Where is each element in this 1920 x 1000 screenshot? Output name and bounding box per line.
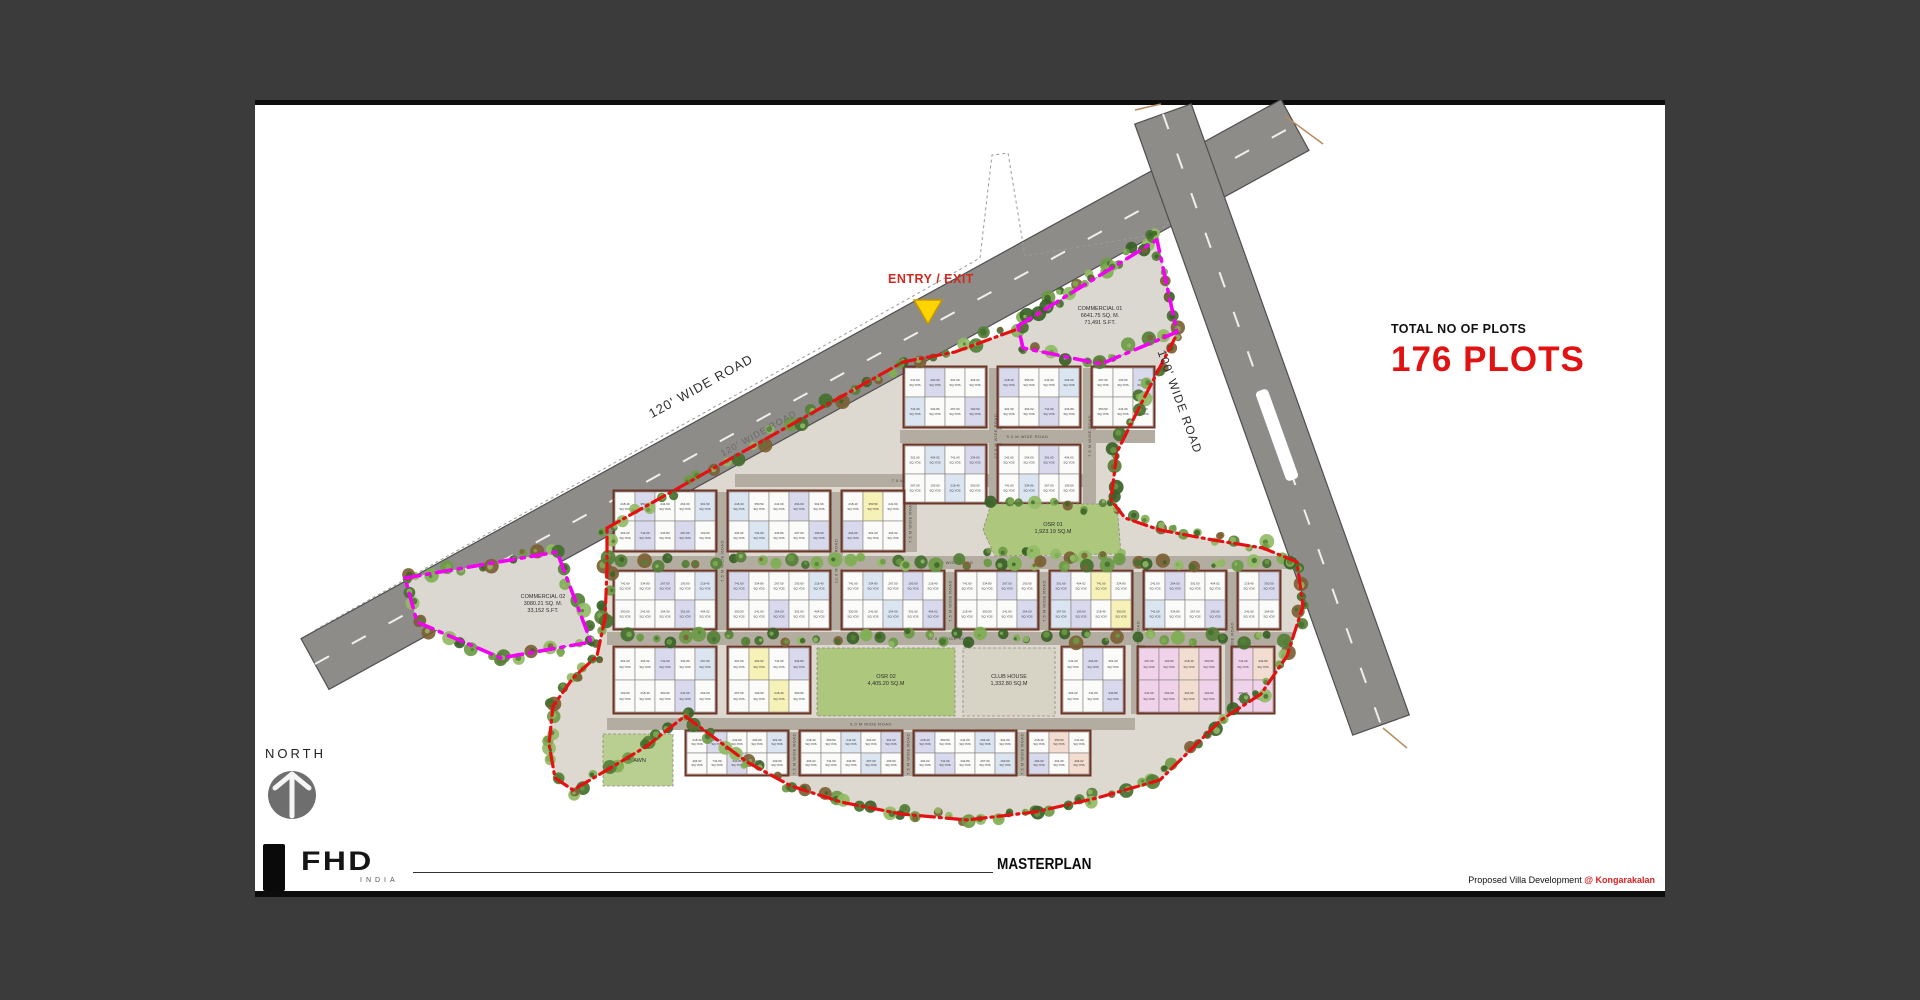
plot-area-unit: SQ.YDS [773, 536, 784, 540]
plot-area-unit: SQ.YDS [639, 697, 650, 701]
plot-area-number: 218.40 [1244, 581, 1254, 585]
tree [1022, 326, 1025, 329]
tree [725, 630, 734, 639]
plot-area-unit: SQ.YDS [773, 665, 784, 669]
tree [1016, 499, 1019, 502]
plot-area-number: 264.00 [1264, 609, 1274, 613]
plot-area-number: 350.50 [754, 502, 764, 506]
tree [804, 561, 807, 564]
plot-area-number: 404.02 [930, 455, 940, 459]
plot-area-number: 741.60 [1096, 581, 1106, 585]
plot-area-number: 193.60 [908, 581, 918, 585]
plot-area-number: 301.60 [1004, 407, 1014, 411]
plot-area-number: 350.50 [734, 609, 744, 613]
plot-area-number: 404.02 [640, 659, 650, 663]
tree [1176, 563, 1180, 567]
tree [1000, 632, 1003, 635]
plot-area-number: 404.02 [1064, 455, 1074, 459]
plot-area-unit: SQ.YDS [733, 536, 744, 540]
tree [1105, 562, 1111, 568]
plot-area-number: 301.60 [1056, 581, 1066, 585]
tree [997, 563, 1002, 568]
plot-area-number: 350.50 [982, 609, 992, 613]
plot-area-unit: SQ.YDS [1095, 614, 1106, 618]
tree [1001, 551, 1005, 555]
internal-road-label: 9.0 M WIDE ROAD [1007, 434, 1049, 439]
plot-area-unit: SQ.YDS [847, 586, 858, 590]
plot-area-unit: SQ.YDS [1107, 697, 1118, 701]
internal-road-label: 9.0 M WIDE ROAD [850, 722, 892, 727]
plot-area-unit: SQ.YDS [865, 742, 876, 746]
plot-area-unit: SQ.YDS [679, 697, 690, 701]
area-club-house-label: 1,332.80 SQ.M [991, 681, 1028, 687]
plot-area-number: 264.00 [794, 502, 804, 506]
tree [977, 634, 980, 637]
plot-area-unit: SQ.YDS [1033, 742, 1044, 746]
tree [739, 554, 743, 558]
plot-area-number: 350.50 [660, 691, 670, 695]
plot-area-number: 241.60 [1044, 378, 1054, 382]
survey-tick [1383, 728, 1407, 748]
tree [1063, 564, 1069, 570]
plot-area-unit: SQ.YDS [939, 742, 950, 746]
plot-area-unit: SQ.YDS [909, 383, 920, 387]
tree [671, 493, 676, 498]
plot-area-unit: SQ.YDS [793, 507, 804, 511]
tree [1070, 555, 1076, 561]
plot-area-unit: SQ.YDS [1149, 614, 1160, 618]
plot-area-unit: SQ.YDS [699, 665, 710, 669]
plot-area-number: 241.60 [640, 609, 650, 613]
tree [1172, 525, 1177, 530]
tree [1134, 559, 1141, 566]
tree [905, 628, 911, 634]
plot-area-number: 241.60 [754, 609, 764, 613]
plot-area-unit: SQ.YDS [1115, 614, 1126, 618]
tree [1049, 810, 1052, 813]
plot-area-number: 264.00 [1024, 455, 1034, 459]
tree [935, 807, 942, 814]
tree [1142, 561, 1148, 567]
tree [655, 637, 658, 640]
tree [902, 805, 907, 810]
plot-area-unit: SQ.YDS [691, 742, 702, 746]
plot-area-number: 241.60 [910, 378, 920, 382]
plot-area-unit: SQ.YDS [949, 412, 960, 416]
plot-area-number: 301.60 [680, 609, 690, 613]
plot-area-unit: SQ.YDS [907, 614, 918, 618]
area-commercial-01-label: 6641.75 SQ. M. [1081, 313, 1120, 319]
plot-area-unit: SQ.YDS [1203, 665, 1214, 669]
plot-area-number: 193.60 [754, 691, 764, 695]
plot-area-unit: SQ.YDS [793, 586, 804, 590]
plot-area-unit: SQ.YDS [887, 586, 898, 590]
plot-area-unit: SQ.YDS [753, 614, 764, 618]
plot-area-unit: SQ.YDS [1149, 586, 1160, 590]
plot-area-number: 193.60 [700, 531, 710, 535]
plot-area-number: 301.60 [1184, 691, 1194, 695]
plot-area-unit: SQ.YDS [751, 742, 762, 746]
plot-area-unit: SQ.YDS [1075, 614, 1086, 618]
plot-area-number: 741.60 [1238, 659, 1248, 663]
tree [1007, 498, 1013, 504]
plot-area-unit: SQ.YDS [1143, 697, 1154, 701]
plot-area-unit: SQ.YDS [969, 460, 980, 464]
plot-area-number: 193.60 [620, 691, 630, 695]
tree [1115, 633, 1119, 637]
tree [954, 632, 958, 636]
plot-area-number: 350.50 [970, 483, 980, 487]
plot-area-number: 264.00 [1170, 581, 1180, 585]
logo-country-text: INDIA [360, 877, 399, 884]
tree [1023, 315, 1026, 318]
tree [642, 560, 648, 566]
plot-area-unit: SQ.YDS [939, 763, 950, 767]
plot-area-number: 218.40 [1004, 378, 1014, 382]
tree [1061, 629, 1067, 635]
plot-area-unit: SQ.YDS [959, 763, 970, 767]
plot-area-number: 267.00 [950, 407, 960, 411]
plot-area-number: 301.60 [908, 609, 918, 613]
plot-area-number: 301.60 [1190, 581, 1200, 585]
plot-area-unit: SQ.YDS [907, 586, 918, 590]
plot-area-unit: SQ.YDS [1073, 763, 1084, 767]
tree [712, 637, 716, 641]
plot-area-number: 334.80 [1258, 659, 1268, 663]
plot-area-unit: SQ.YDS [887, 614, 898, 618]
tree [713, 561, 718, 566]
tree [1161, 638, 1166, 643]
plot-area-unit: SQ.YDS [659, 665, 670, 669]
plot-area-number: 741.60 [734, 581, 744, 585]
plot-area-number: 741.60 [774, 659, 784, 663]
plot-area-unit: SQ.YDS [813, 536, 824, 540]
plot-area-number: 264.00 [774, 609, 784, 613]
tree [1127, 343, 1131, 347]
plot-area-unit: SQ.YDS [1257, 665, 1268, 669]
plot-area-number: 241.60 [1118, 407, 1128, 411]
plot-area-number: 741.60 [620, 581, 630, 585]
road-100-label: 100' WIDE ROAD [1155, 348, 1205, 455]
tree [998, 629, 1008, 639]
plot-area-unit: SQ.YDS [999, 742, 1010, 746]
plot-area-unit: SQ.YDS [813, 507, 824, 511]
internal-road-label: 7.5 M WIDE ROAD [1020, 733, 1025, 775]
tree [867, 803, 871, 807]
tree [788, 555, 795, 562]
plot-area-number: 404.02 [700, 609, 710, 613]
plot-area-unit: SQ.YDS [773, 697, 784, 701]
plot-area-unit: SQ.YDS [1023, 460, 1034, 464]
plot-area-unit: SQ.YDS [1263, 586, 1274, 590]
area-commercial-02-label: COMMERCIAL 02 [521, 594, 566, 600]
plot-area-number: 241.60 [1144, 691, 1154, 695]
plot-area-unit: SQ.YDS [813, 586, 824, 590]
tree [1105, 638, 1109, 642]
tree [1282, 640, 1287, 645]
tree [963, 641, 970, 648]
plot-area-unit: SQ.YDS [1023, 383, 1034, 387]
area-club-house-label: CLUB HOUSE [991, 674, 1027, 680]
plot-area-number: 264.00 [848, 531, 858, 535]
plot-area-number: 267.00 [1190, 609, 1200, 613]
plot-area-unit: SQ.YDS [1067, 697, 1078, 701]
plot-area-unit: SQ.YDS [1033, 763, 1044, 767]
plot-area-unit: SQ.YDS [805, 742, 816, 746]
plot-area-unit: SQ.YDS [1087, 665, 1098, 669]
plot-area-unit: SQ.YDS [639, 586, 650, 590]
area-commercial-02-label: 33,152 S.FT. [527, 608, 559, 614]
tree [638, 637, 643, 642]
tree [1219, 635, 1225, 641]
credit-location: @ Kongarakalan [1584, 875, 1655, 885]
plot-area-number: 193.60 [794, 581, 804, 585]
plot-area-number: 241.60 [1004, 455, 1014, 459]
plot-area-number: 741.60 [660, 659, 670, 663]
tree [1073, 281, 1079, 287]
plot-area-unit: SQ.YDS [1189, 614, 1200, 618]
plot-area-number: 404.02 [1076, 581, 1086, 585]
tree [1036, 559, 1042, 565]
plot-area-unit: SQ.YDS [1023, 488, 1034, 492]
plot-area-number: 350.50 [1024, 378, 1034, 382]
plot-area-number: 267.00 [774, 581, 784, 585]
plot-area-unit: SQ.YDS [1209, 614, 1220, 618]
plot-area-unit: SQ.YDS [733, 507, 744, 511]
plot-area-unit: SQ.YDS [793, 614, 804, 618]
plot-area-number: 334.80 [868, 581, 878, 585]
tree [763, 443, 766, 446]
plot-area-unit: SQ.YDS [867, 507, 878, 511]
plot-area-unit: SQ.YDS [1055, 614, 1066, 618]
tree [1175, 636, 1180, 641]
plot-area-number: 334.80 [754, 581, 764, 585]
plot-area-number: 741.60 [962, 581, 972, 585]
tree [692, 561, 698, 567]
tree [1054, 553, 1059, 558]
tree [813, 637, 818, 642]
tree [1012, 562, 1016, 566]
plot-area-unit: SQ.YDS [867, 536, 878, 540]
tree [814, 562, 818, 566]
plot-area-unit: SQ.YDS [927, 614, 938, 618]
plot-area-unit: SQ.YDS [1053, 742, 1064, 746]
plot-area-unit: SQ.YDS [679, 536, 690, 540]
plot-area-number: 301.60 [814, 502, 824, 506]
plot-area-unit: SQ.YDS [773, 507, 784, 511]
plot-area-number: 741.60 [754, 531, 764, 535]
tree [1156, 553, 1170, 567]
plot-area-number: 264.00 [888, 609, 898, 613]
tree [533, 549, 537, 553]
plot-area-unit: SQ.YDS [639, 614, 650, 618]
plot-area-unit: SQ.YDS [949, 488, 960, 492]
area-osr-02-label: OSR 02 [876, 674, 896, 680]
plot-area-unit: SQ.YDS [679, 586, 690, 590]
plot-area-number: 241.60 [1002, 609, 1012, 613]
plot-area-number: 404.02 [754, 659, 764, 663]
plot-area-unit: SQ.YDS [949, 383, 960, 387]
plot-area-number: 404.02 [928, 609, 938, 613]
tree [666, 639, 672, 645]
tree [1023, 550, 1027, 554]
tree [1244, 695, 1248, 699]
plot-area-unit: SQ.YDS [753, 536, 764, 540]
tree [1256, 632, 1262, 638]
plot-area-unit: SQ.YDS [1043, 412, 1054, 416]
plot-area-unit: SQ.YDS [929, 383, 940, 387]
tree [1081, 553, 1087, 559]
tree [520, 549, 525, 554]
tree [683, 635, 689, 641]
plot-area-unit: SQ.YDS [1021, 586, 1032, 590]
entry-exit-label: ENTRY / EXIT [879, 272, 983, 286]
plot-area-number: 301.60 [950, 378, 960, 382]
plot-area-unit: SQ.YDS [659, 586, 670, 590]
plot-area-number: 741.60 [848, 581, 858, 585]
tree [682, 564, 686, 568]
plot-area-number: 267.00 [1002, 581, 1012, 585]
plot-area-number: 334.80 [982, 581, 992, 585]
plot-area-unit: SQ.YDS [1169, 586, 1180, 590]
tree [739, 457, 743, 461]
total-plots-stat: TOTAL NO OF PLOTS 176 PLOTS [1391, 322, 1585, 380]
plot-area-unit: SQ.YDS [733, 665, 744, 669]
plot-area-number: 267.00 [1144, 659, 1154, 663]
plot-area-unit: SQ.YDS [845, 742, 856, 746]
total-plots-value: 176 PLOTS [1391, 340, 1585, 380]
tree [655, 565, 658, 568]
tree [626, 632, 631, 637]
tree [957, 557, 961, 561]
tree [662, 553, 672, 563]
tree [859, 555, 864, 560]
plot-area-number: 218.40 [848, 502, 858, 506]
tree [698, 631, 701, 634]
tree [1065, 502, 1070, 507]
tree [1057, 304, 1060, 307]
tree [1147, 631, 1154, 638]
plot-area-number: 264.00 [1164, 691, 1174, 695]
plot-area-number: 334.80 [660, 531, 670, 535]
tree [1211, 564, 1215, 568]
plot-area-number: 193.60 [970, 407, 980, 411]
tree [1128, 244, 1132, 248]
plot-area-number: 404.02 [734, 531, 744, 535]
plot-area-number: 404.02 [620, 531, 630, 535]
tree [1088, 789, 1093, 794]
tree [557, 650, 564, 657]
plot-area-unit: SQ.YDS [919, 763, 930, 767]
plot-area-number: 193.60 [1076, 609, 1086, 613]
plot-area-unit: SQ.YDS [1063, 412, 1074, 416]
plot-area-unit: SQ.YDS [825, 763, 836, 767]
plot-area-unit: SQ.YDS [847, 536, 858, 540]
plot-area-number: 264.00 [700, 691, 710, 695]
plot-area-unit: SQ.YDS [1203, 697, 1214, 701]
tree [880, 559, 886, 565]
tree [1208, 629, 1214, 635]
tree [1263, 694, 1268, 699]
tree [547, 703, 550, 706]
tree [1123, 249, 1126, 252]
tree [835, 639, 841, 645]
north-label: NORTH [265, 746, 326, 761]
plot-area-number: 241.60 [680, 691, 690, 695]
plot-area-number: 334.80 [1170, 609, 1180, 613]
internal-road-label: 7.5 M WIDE ROAD [792, 733, 797, 775]
plot-area-unit: SQ.YDS [771, 763, 782, 767]
area-osr-02-label: 4,405.20 SQ.M [868, 681, 905, 687]
tree [831, 557, 835, 561]
tree [572, 792, 575, 795]
plot-area-number: 741.60 [1088, 691, 1098, 695]
plot-area-unit: SQ.YDS [691, 763, 702, 767]
plot-area-unit: SQ.YDS [699, 614, 710, 618]
plot-area-unit: SQ.YDS [927, 586, 938, 590]
plot-area-unit: SQ.YDS [867, 614, 878, 618]
tree [1234, 562, 1237, 565]
internal-road-label: 7.5 M WIDE ROAD [906, 733, 911, 775]
plot-area-unit: SQ.YDS [1073, 742, 1084, 746]
plot-area-unit: SQ.YDS [1143, 665, 1154, 669]
tree [1294, 608, 1298, 612]
tree [644, 502, 656, 514]
plot-area-unit: SQ.YDS [793, 665, 804, 669]
plot-area-unit: SQ.YDS [619, 586, 630, 590]
internal-road-label: 7.5 M WIDE ROAD [908, 501, 913, 543]
plot-area-unit: SQ.YDS [909, 412, 920, 416]
plot-area-unit: SQ.YDS [773, 614, 784, 618]
plot-area-number: 741.60 [1044, 407, 1054, 411]
plot-area-unit: SQ.YDS [1021, 614, 1032, 618]
plot-area-unit: SQ.YDS [1117, 383, 1128, 387]
plot-area-number: 301.60 [700, 502, 710, 506]
tree [1298, 622, 1304, 628]
tree [1158, 522, 1164, 528]
plot-area-unit: SQ.YDS [1055, 586, 1066, 590]
plot-area-number: 301.60 [1108, 659, 1118, 663]
plot-area-number: 334.80 [970, 455, 980, 459]
tree [1131, 513, 1136, 518]
plot-area-number: 193.60 [930, 483, 940, 487]
masterplan-sheet: 9.0 M WIDE ROAD7.5 M WIDE ROAD13.5 M WID… [255, 100, 1665, 897]
sheet-bottom-border [255, 891, 1665, 897]
plot-area-number: 193.60 [1118, 378, 1128, 382]
tree [1218, 532, 1224, 538]
plot-area-number: 218.40 [814, 581, 824, 585]
tree [939, 638, 946, 645]
plot-area-number: 350.50 [1098, 407, 1108, 411]
plot-area-unit: SQ.YDS [679, 665, 690, 669]
tree [1100, 551, 1106, 557]
plot-area-unit: SQ.YDS [1001, 586, 1012, 590]
tree [1189, 641, 1192, 644]
plot-area-number: 241.60 [774, 502, 784, 506]
compass-icon [265, 767, 319, 821]
plot-area-number: 301.60 [794, 609, 804, 613]
plot-area-unit: SQ.YDS [867, 586, 878, 590]
plot-area-number: 334.80 [794, 659, 804, 663]
plot-area-number: 404.02 [888, 531, 898, 535]
plot-area-number: 241.60 [1150, 581, 1160, 585]
plot-area-number: 218.40 [928, 581, 938, 585]
plot-area-number: 267.00 [1056, 609, 1066, 613]
tree [1149, 233, 1153, 237]
plot-area-number: 301.60 [910, 455, 920, 459]
plot-area-unit: SQ.YDS [825, 742, 836, 746]
tree [726, 635, 729, 638]
